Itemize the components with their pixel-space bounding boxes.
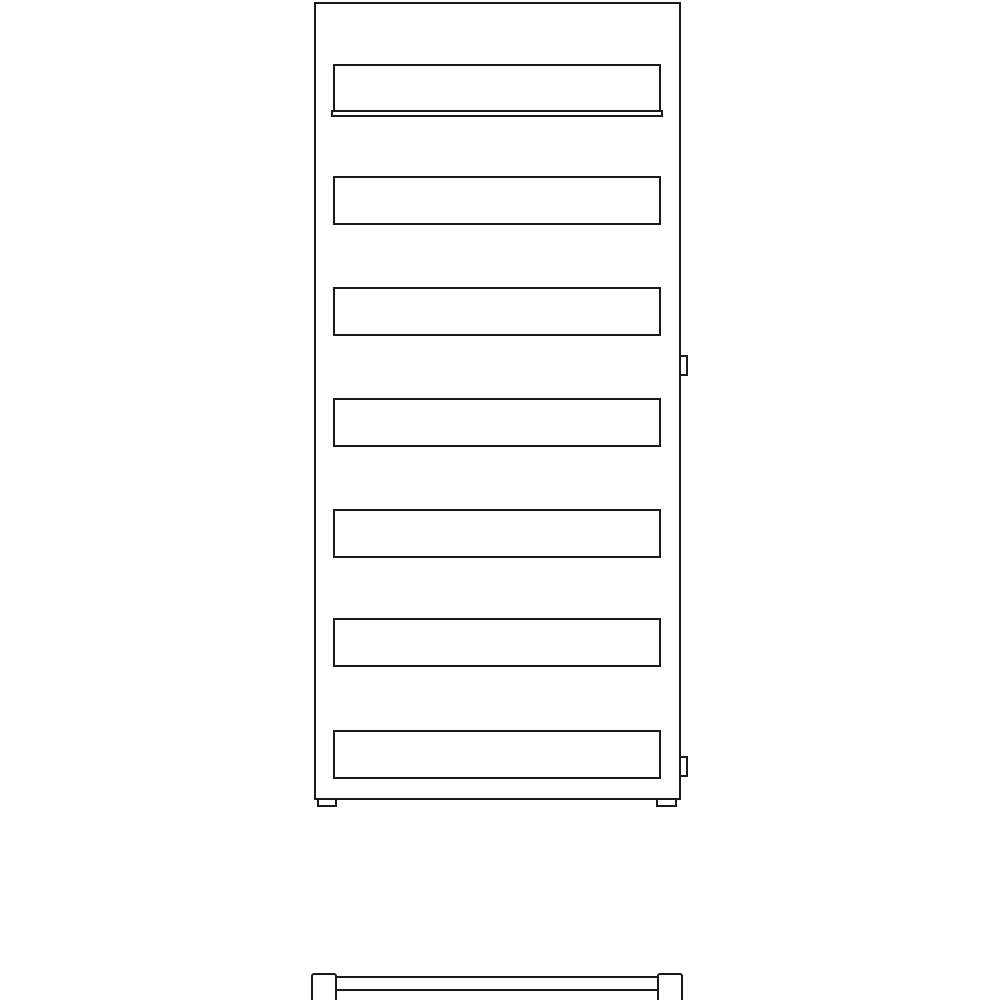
radiator-technical-drawing	[0, 0, 1000, 1000]
end-cap-left	[311, 973, 337, 1000]
end-cap-right	[657, 973, 683, 1000]
radiator-bottom-plan-view	[0, 0, 1000, 1000]
bottom-view-mid-line	[336, 989, 658, 991]
bottom-view-body	[334, 976, 660, 1000]
